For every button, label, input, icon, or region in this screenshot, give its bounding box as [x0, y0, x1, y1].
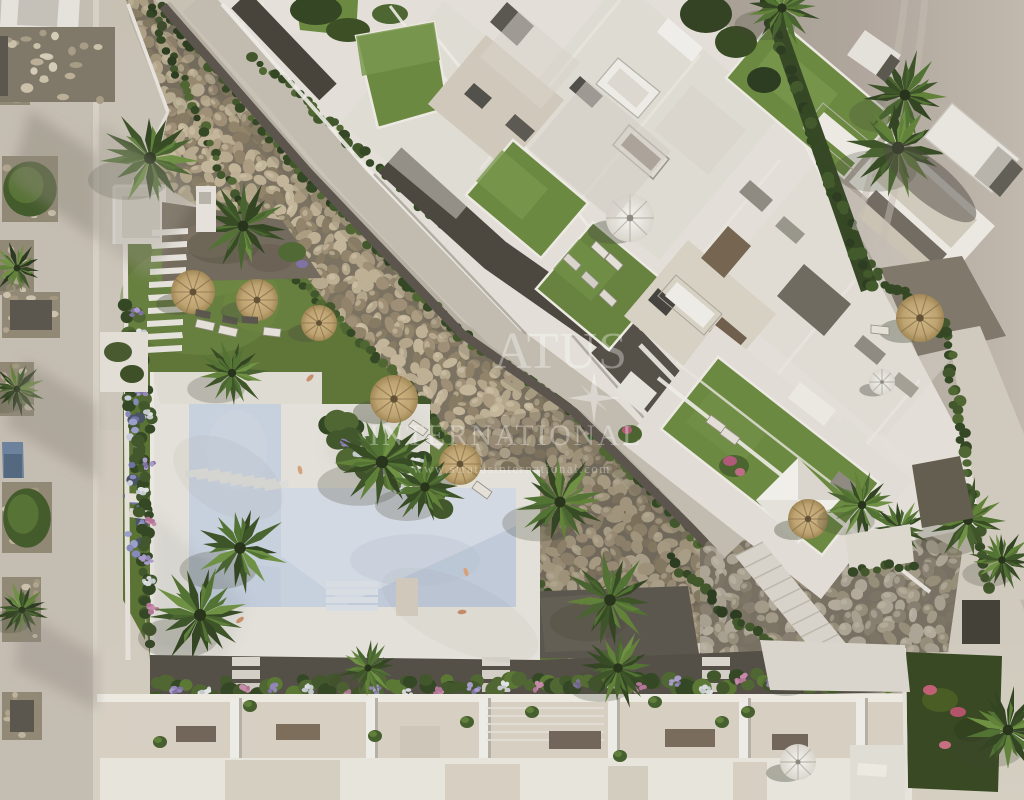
svg-text:ATUS: ATUS: [494, 323, 628, 380]
svg-text:www.stratusinternational.com: www.stratusinternational.com: [413, 461, 611, 476]
svg-text:INTERNATIONAL: INTERNATIONAL: [369, 419, 643, 452]
